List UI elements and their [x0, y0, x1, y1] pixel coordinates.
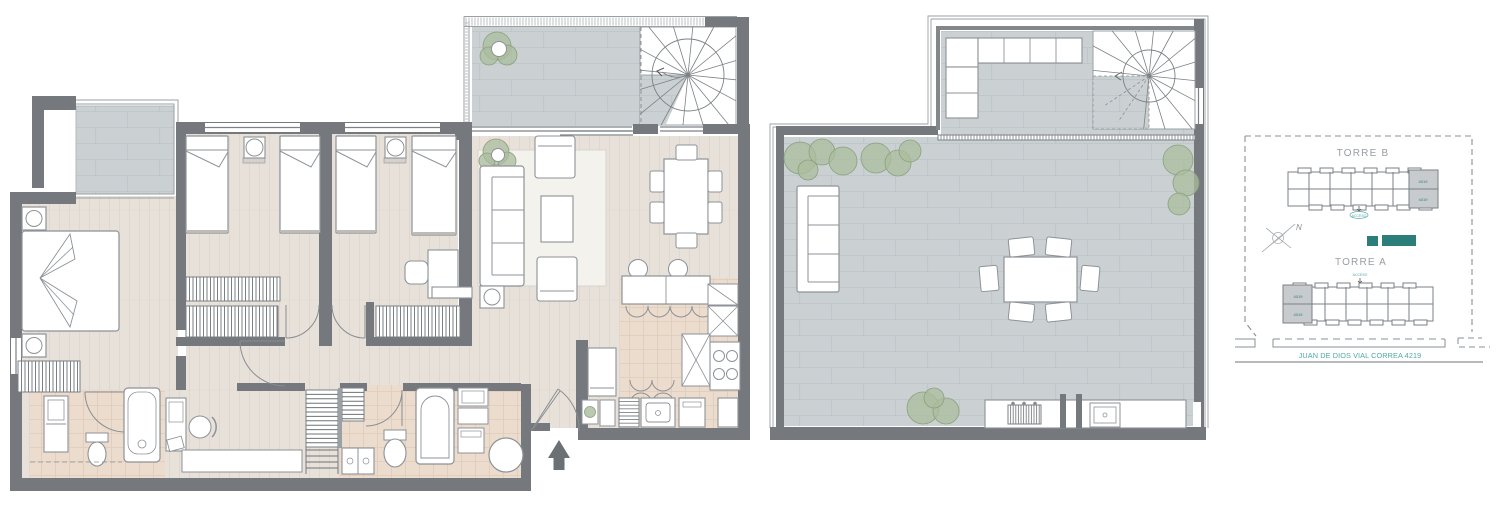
svg-text:N: N [1296, 223, 1302, 232]
svg-text:ACCESO: ACCESO [1352, 214, 1367, 218]
svg-text:4019: 4019 [1419, 179, 1429, 184]
svg-text:TORRE B: TORRE B [1337, 148, 1390, 159]
svg-text:4019: 4019 [1294, 312, 1304, 317]
svg-text:TORRE A: TORRE A [1335, 257, 1387, 268]
svg-text:JUAN DE DIOS VIAL CORREA 4219: JUAN DE DIOS VIAL CORREA 4219 [1299, 351, 1422, 360]
svg-text:4019: 4019 [1294, 294, 1304, 299]
svg-text:ACCESO: ACCESO [1353, 273, 1368, 277]
svg-text:4019: 4019 [1419, 197, 1429, 202]
